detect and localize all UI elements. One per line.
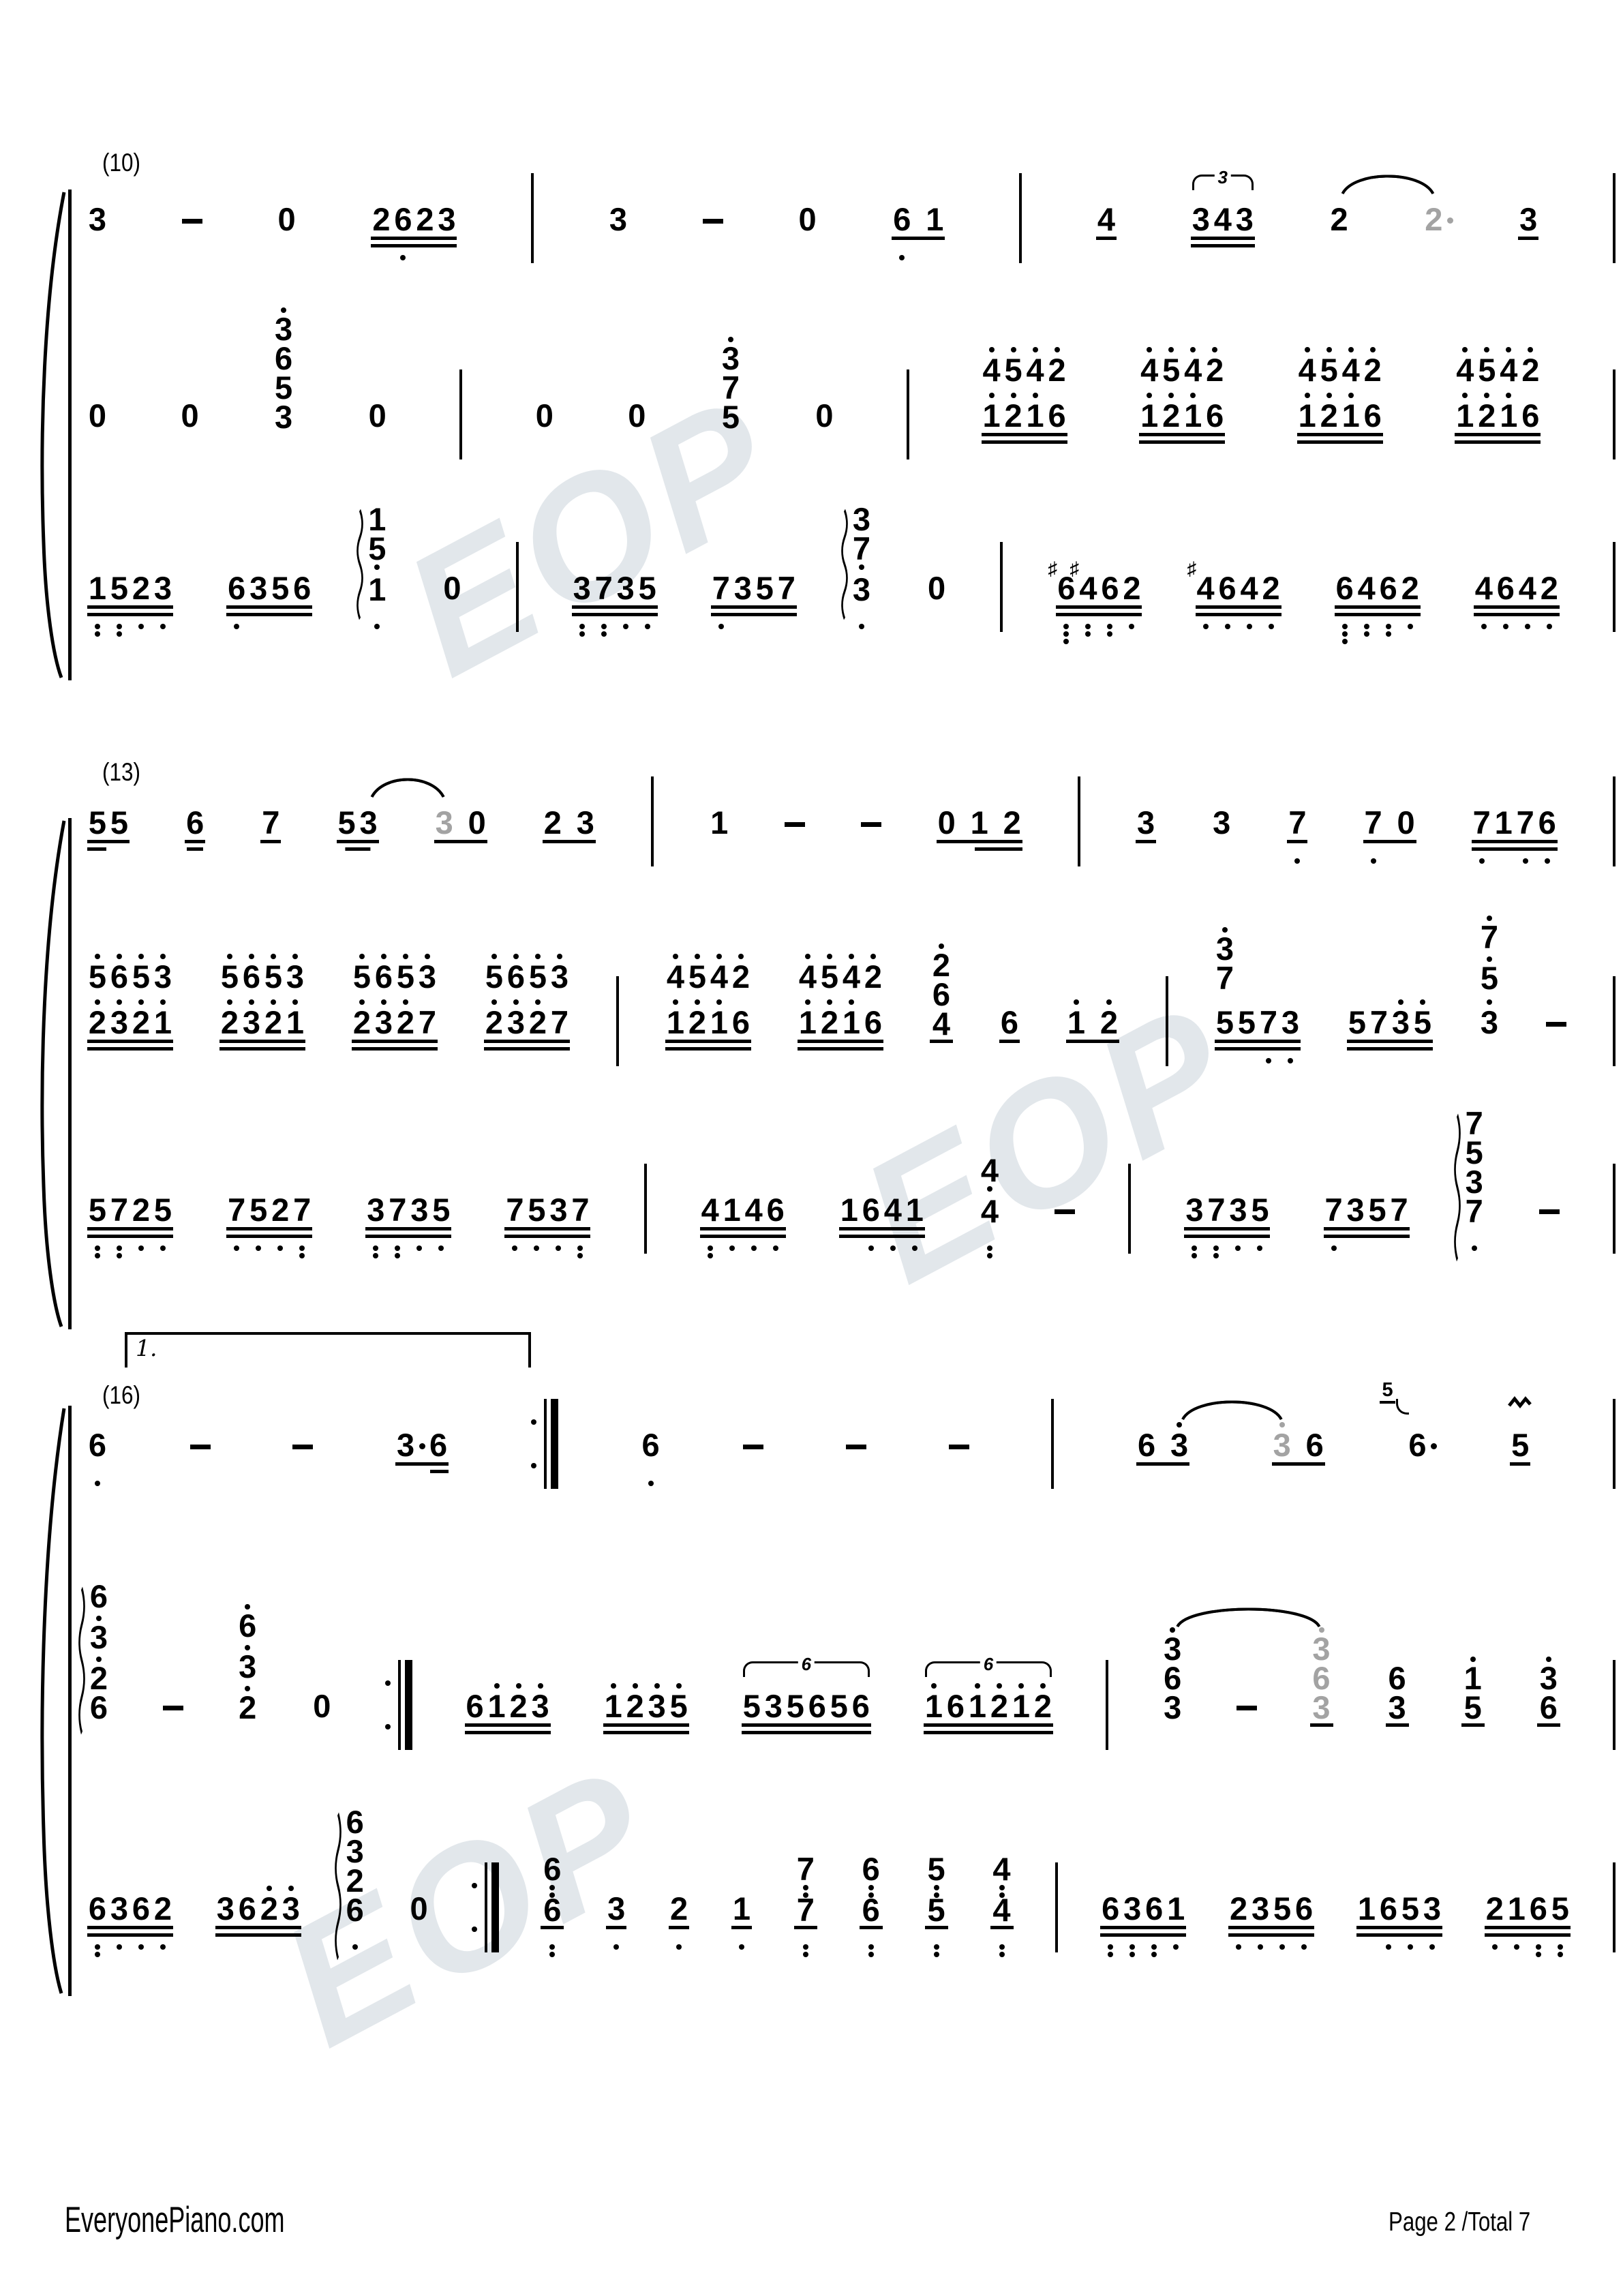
bass-line: 1523635615103735735737306♯4♯624♯64264624… [87, 404, 1616, 647]
chord-note: 5 [1463, 1138, 1486, 1167]
chord-note: 1 [365, 575, 389, 604]
beam [794, 1926, 817, 1929]
beams [395, 1461, 449, 1477]
chord-note: 3 [1310, 1693, 1333, 1722]
octave-dot [859, 624, 864, 629]
beam-group: 6361 [1100, 1879, 1186, 1967]
note-digit: 4 [992, 1854, 1010, 1884]
beam-group: 4542 [665, 947, 751, 993]
beam [504, 1227, 590, 1230]
note-digit: 6 [239, 1611, 256, 1640]
octave-dot [534, 1245, 539, 1251]
note-digit: 5 [87, 1194, 108, 1226]
octave-dot [138, 624, 144, 629]
chord-note: 3 [344, 1837, 367, 1866]
beam [990, 1926, 1014, 1929]
page-indicator: Page 2 /Total 7 [1389, 2207, 1530, 2237]
octave-dot [577, 1245, 583, 1251]
note-digit: 5 [87, 807, 108, 839]
note-digit: 1 [722, 1194, 742, 1226]
lower-octave-dots [352, 1941, 358, 1967]
beam [669, 1926, 689, 1929]
octave-dot [299, 1245, 305, 1251]
note-digit: 6 [1294, 1893, 1314, 1924]
chord-note: 3 [719, 332, 742, 373]
barline-rule [1613, 1399, 1616, 1489]
lower-octave-dots [1485, 1941, 1505, 1967]
lower-octave-dots [153, 1941, 173, 1967]
beams [1324, 1226, 1410, 1242]
lower-octave-dots [1528, 1941, 1549, 1967]
octave-dot [868, 1245, 874, 1251]
thick-bar [491, 1862, 499, 1952]
octave-dot [1279, 1944, 1285, 1950]
note-digit: 5 [87, 961, 108, 993]
note-digit: 1 [1011, 1691, 1031, 1722]
octave-dot [1063, 631, 1069, 637]
beam [541, 1926, 564, 1929]
beam [226, 605, 312, 609]
beams [1485, 1924, 1571, 1941]
note-digit: 2 [1329, 204, 1350, 235]
beam [1100, 1933, 1186, 1937]
beams [365, 1226, 451, 1242]
octave-dot [623, 624, 628, 629]
bass-line: 57257527373575374146164144373573577537 [87, 1026, 1616, 1269]
chord-note: 5 [1478, 952, 1501, 993]
dash-rule [182, 219, 202, 224]
beam [215, 1926, 301, 1929]
octave-dot [1331, 1245, 1337, 1251]
octave-dot [1386, 624, 1391, 629]
chord-note: 3 [1161, 1693, 1184, 1722]
chord-note: 3 [1386, 1693, 1409, 1722]
note-digit: 1 [1506, 1893, 1527, 1924]
octave-dot [1492, 1944, 1498, 1950]
repeat-dots [531, 1419, 536, 1468]
note-digit: 7 [711, 573, 731, 604]
note-digit: 5 [484, 961, 504, 993]
beam-group: 3735 [365, 1180, 451, 1269]
beam [87, 1227, 173, 1230]
tuplet-bracket: 6 [925, 1661, 1052, 1677]
chord-note: 6 [236, 1599, 259, 1640]
note-digit: 3 [248, 573, 269, 604]
chord-note: 6 [541, 1895, 564, 1924]
note-digit: 5 [928, 1854, 945, 1884]
octave-dot [1481, 624, 1487, 629]
note-digit: 5 [1400, 1893, 1421, 1924]
dash-rule [861, 822, 881, 827]
octave-dot [95, 1944, 100, 1950]
note-digit: 0 [442, 573, 462, 604]
barline [1000, 542, 1003, 647]
chord: 77 [794, 1854, 817, 1967]
octave-dot [1085, 624, 1091, 629]
note-digit: 3 [572, 573, 592, 604]
note-digit: 6 [1217, 573, 1238, 604]
note-digit: 6 [1144, 1893, 1164, 1924]
chord-note: 3 [1537, 1652, 1560, 1693]
dash-rule [163, 1706, 183, 1710]
octave-dot [95, 1253, 100, 1258]
note-digit: 5 [1161, 354, 1181, 386]
beam [1184, 1235, 1270, 1238]
chord-note: 7 [850, 534, 873, 575]
note-digit: 7 [1389, 1194, 1410, 1226]
note-digit: 4 [1025, 354, 1046, 386]
beam-group: 4542 [1455, 340, 1541, 386]
note-digit: 3 [87, 204, 108, 235]
note-digit: 6 [1389, 1663, 1406, 1693]
note-digit: 2 [1261, 573, 1281, 604]
octave-dot [1269, 624, 1274, 629]
beam [87, 1235, 173, 1238]
note-digit: 4 [1498, 354, 1519, 386]
octave-dot [1514, 1944, 1519, 1950]
note-digit: 3 [436, 204, 457, 235]
octave-dot [773, 1245, 778, 1251]
chord-note: 1 [1461, 1652, 1485, 1693]
duration-dash [949, 1445, 969, 1504]
chord-note: 1 [365, 504, 389, 534]
note-digit: 7 [594, 573, 614, 604]
note-digit: 6 [1335, 573, 1355, 604]
dash-rule [190, 1445, 211, 1449]
octave-dot [751, 1245, 757, 1251]
note-digit: 3 [1312, 1693, 1330, 1722]
beam [87, 1933, 173, 1937]
octave-dot [1536, 1944, 1541, 1950]
octave-dot [95, 1245, 100, 1251]
beam-group: 7527 [226, 1180, 312, 1269]
note-digit: 7 [1515, 807, 1536, 839]
dash-rule [846, 1445, 866, 1449]
note-digit: 2 [543, 807, 563, 839]
note-digit: 5 [785, 1691, 806, 1722]
note-digit: 2 [932, 950, 950, 980]
thin-bar [485, 1862, 487, 1952]
note-digit: 3 [549, 961, 570, 993]
note-digit: 1 [1356, 1893, 1377, 1924]
lower-octave-dots [669, 1941, 689, 1967]
beam-group: 2356 [1228, 1879, 1314, 1967]
note-digit: 6 [1378, 573, 1399, 604]
beams [926, 604, 947, 620]
note-digit: 3 [853, 575, 870, 604]
octave-dot [648, 1481, 654, 1486]
octave-dot [373, 1245, 378, 1251]
octave-dot [1503, 624, 1508, 629]
note-digit: 6 [932, 980, 950, 1009]
note-digit: 0 [926, 573, 947, 604]
beams [1228, 1924, 1314, 1941]
note-digit: 5 [368, 534, 386, 563]
chord-note: 4 [978, 1155, 1001, 1196]
note-digit: 1 [368, 575, 386, 604]
dash-rule [1237, 1706, 1257, 1710]
note-digit: 5 [275, 373, 292, 402]
beams [850, 604, 873, 620]
note-digit: 6 [90, 1582, 108, 1611]
note-digit: 3 [722, 344, 740, 373]
barline-rule [1055, 1862, 1058, 1952]
barline-rule [644, 1164, 647, 1254]
note-digit: 6 [226, 573, 247, 604]
lower-octave-dots [1422, 1941, 1442, 1967]
note-digit: 3 [1164, 1693, 1181, 1722]
partial-beam [430, 1470, 449, 1473]
arpeggio-icon [77, 1584, 87, 1737]
note-digit: 5 [528, 961, 548, 993]
note-digit: 2 [371, 204, 391, 235]
chord-note: 6 [541, 1854, 564, 1895]
octave-dot [138, 1245, 144, 1251]
dash-rule [1539, 1209, 1560, 1214]
barline [1613, 1399, 1616, 1504]
note-digit: 5 [109, 573, 130, 604]
chord-note: 6 [87, 1582, 110, 1611]
note-digit: 3 [239, 1652, 256, 1681]
lower-octave-dots [1272, 1477, 1292, 1504]
note-digit: 7 [1466, 1196, 1483, 1226]
note-digit: 2 [414, 204, 435, 235]
dash-rule [743, 1445, 763, 1449]
beam-group: 1523 [87, 558, 173, 647]
lower-octave-dots [606, 1941, 626, 1967]
note-digit: 3 [346, 1837, 364, 1866]
octave-dot [234, 1245, 239, 1251]
note: 1 [731, 1879, 752, 1967]
note-digit: 3 [417, 961, 438, 993]
octave-dot [549, 1952, 555, 1957]
note-digit: 2 [1204, 354, 1225, 386]
note-digit: 4 [992, 1895, 1010, 1924]
augmentation-dot [419, 1443, 425, 1449]
barline [1613, 542, 1616, 647]
note-digit: 6 [87, 1430, 108, 1461]
lower-octave-dots [1506, 1941, 1527, 1967]
site-credit: EveryonePiano.com [65, 2199, 285, 2241]
note-digit: 3 [1389, 1693, 1406, 1722]
octave-dot [1558, 1952, 1563, 1957]
chord-note: 4 [990, 1854, 1014, 1895]
beams [731, 1924, 752, 1941]
chord: 66 [541, 1854, 564, 1967]
barline-rule [1051, 1399, 1054, 1489]
octave-dot [1063, 624, 1069, 629]
barline [1613, 1164, 1616, 1269]
beam-group: 7357 [711, 558, 797, 647]
beam [1335, 605, 1421, 609]
repeat-sign [531, 1399, 558, 1489]
lower-octave-dots [1169, 1477, 1189, 1504]
bass-line: 6362362363260663217766554463612356165321… [87, 1725, 1616, 1967]
arpeggio-icon [840, 507, 849, 622]
note-digit: 3 [763, 1691, 784, 1722]
note-digit: 6 [862, 1895, 880, 1924]
lower-octave-dots [1407, 1477, 1427, 1504]
chord: 6326 [344, 1807, 367, 1967]
octave-dot [1547, 624, 1552, 629]
beam [700, 1227, 786, 1230]
beams [1136, 1461, 1189, 1477]
octave-dot [579, 631, 585, 637]
octave-dot [1129, 1944, 1135, 1950]
beam-group: 5653 [87, 947, 173, 993]
dash-rule [292, 1445, 313, 1449]
octave-dot [395, 1245, 400, 1251]
note-digit: 2 [1485, 1893, 1505, 1924]
beam-group: 4♯642 [1196, 558, 1281, 647]
note-digit: 6 [1528, 1893, 1549, 1924]
lower-octave-dots [215, 1941, 236, 1967]
octave-dot [1192, 1245, 1197, 1251]
beams [442, 604, 462, 620]
note-digit: 7 [1481, 922, 1498, 952]
chord-note: 6 [344, 1895, 367, 1924]
tuplet-bracket: 3 [1192, 175, 1254, 190]
beam-group: 1653 [1356, 1879, 1442, 1967]
note-digit: 6 [374, 961, 394, 993]
beam [504, 1235, 590, 1238]
octave-dot [160, 1944, 166, 1950]
beams [1474, 604, 1560, 620]
note-digit: 1 [709, 807, 729, 839]
note-digit: 1 [603, 1691, 624, 1722]
note-digit: 6 [1312, 1663, 1330, 1693]
beams [87, 1924, 173, 1941]
note: 6 [87, 1415, 108, 1504]
note-digit: 4 [1213, 204, 1233, 235]
beam-group: 36 [1272, 1415, 1325, 1504]
note-digit: 6 [765, 1194, 786, 1226]
note-digit: 3 [109, 1893, 130, 1924]
note-digit: 5 [1272, 1893, 1292, 1924]
note-digit: 3 [281, 1893, 301, 1924]
octave-dot [1408, 624, 1413, 629]
note-digit: 6 [1378, 1893, 1399, 1924]
note-digit: 3 [1234, 204, 1255, 235]
lower-octave-dots [409, 1941, 429, 1967]
octave-dot [987, 1253, 992, 1258]
note-digit: 2 [1520, 354, 1541, 386]
note-digit: 1 [924, 1691, 944, 1722]
beams [606, 1924, 626, 1941]
note-digit: 5 [687, 961, 708, 993]
beam [731, 1926, 752, 1929]
note-digit: 6 [543, 1854, 561, 1884]
lower-octave-dots [237, 1941, 258, 1967]
octave-dot [868, 1952, 874, 1957]
note-digit: 4 [981, 1155, 999, 1185]
octave-dot [934, 1944, 939, 1950]
beam-group: 4542 [1297, 340, 1383, 386]
note-digit: 6 [641, 1430, 661, 1461]
mordent-icon [1508, 1396, 1532, 1408]
note-digit: 7 [776, 573, 797, 604]
chord: 151 [365, 504, 389, 647]
octave-dot [373, 1253, 378, 1258]
note-digit: 2 [863, 961, 883, 993]
beam-group: 4146 [700, 1180, 786, 1269]
note-digit: 3 [1211, 807, 1232, 839]
octave-dot [160, 1245, 166, 1251]
note-digit: 3 [1250, 1893, 1271, 1924]
note-digit: 2 [1121, 573, 1142, 604]
repeat-sign [472, 1862, 499, 1952]
note-digit: 6 [1540, 1693, 1558, 1722]
beam [215, 1933, 301, 1937]
note-digit: 6 [275, 344, 292, 373]
note-digit: 4 [665, 961, 686, 993]
note-digit: 3 [1272, 1430, 1292, 1461]
beams [541, 1924, 564, 1941]
beams [215, 1924, 301, 1941]
octave-dot [385, 1680, 391, 1686]
dash-rule [785, 822, 805, 827]
barline [1128, 1164, 1131, 1269]
chord-note: 6 [930, 980, 953, 1009]
octave-dot [138, 1944, 144, 1950]
beam-group: 3735 [572, 558, 658, 647]
note-digit: 1 [731, 1893, 752, 1924]
note-digit: 3 [1228, 1194, 1248, 1226]
note-digit: 3 [608, 204, 628, 235]
note-digit: 3 [530, 1691, 551, 1722]
beams [365, 604, 389, 620]
beam [226, 613, 312, 616]
note-digit: 5 [1466, 1138, 1483, 1167]
duration-dash [292, 1445, 313, 1504]
octave-dot [1236, 1944, 1241, 1950]
octave-dot [277, 1245, 283, 1251]
octave-dot [1213, 1253, 1219, 1258]
beam-group: 5653 [352, 947, 438, 993]
note-digit: 3 [1164, 1634, 1181, 1663]
chord: 7537 [1463, 1108, 1486, 1269]
beams [990, 1924, 1014, 1941]
octave-dot [472, 1883, 477, 1888]
beams [711, 604, 797, 620]
note-digit: 0 [467, 807, 487, 839]
chord: 55 [925, 1854, 948, 1967]
lower-octave-dots [1356, 1941, 1377, 1967]
duration-dash [846, 1445, 866, 1504]
note-digit: 5 [928, 1895, 945, 1924]
note-digit: 4 [1455, 354, 1475, 386]
tuplet-number: 3 [1215, 168, 1231, 186]
note-digit: 4 [744, 1194, 764, 1226]
note: 65 [1407, 1415, 1427, 1504]
chord-note: 3 [1310, 1622, 1333, 1663]
note-digit: 2 [1363, 354, 1383, 386]
note-digit: 1 [969, 807, 990, 839]
octave-dot [718, 624, 724, 629]
chord-note: 6 [344, 1807, 367, 1837]
repeat-dots [385, 1680, 391, 1729]
octave-dot [890, 1245, 896, 1251]
lower-octave-dots [641, 1477, 661, 1504]
octave-dot [416, 1245, 422, 1251]
note-digit: 3 [733, 573, 753, 604]
beam-group: 6362 [87, 1879, 173, 1967]
note-digit: 3 [1422, 1893, 1442, 1924]
octave-dot [708, 1245, 713, 1251]
augmentation-dot [1431, 1443, 1437, 1449]
lower-octave-dots [1144, 1941, 1164, 1967]
chord-note: 3 [1463, 1167, 1486, 1196]
